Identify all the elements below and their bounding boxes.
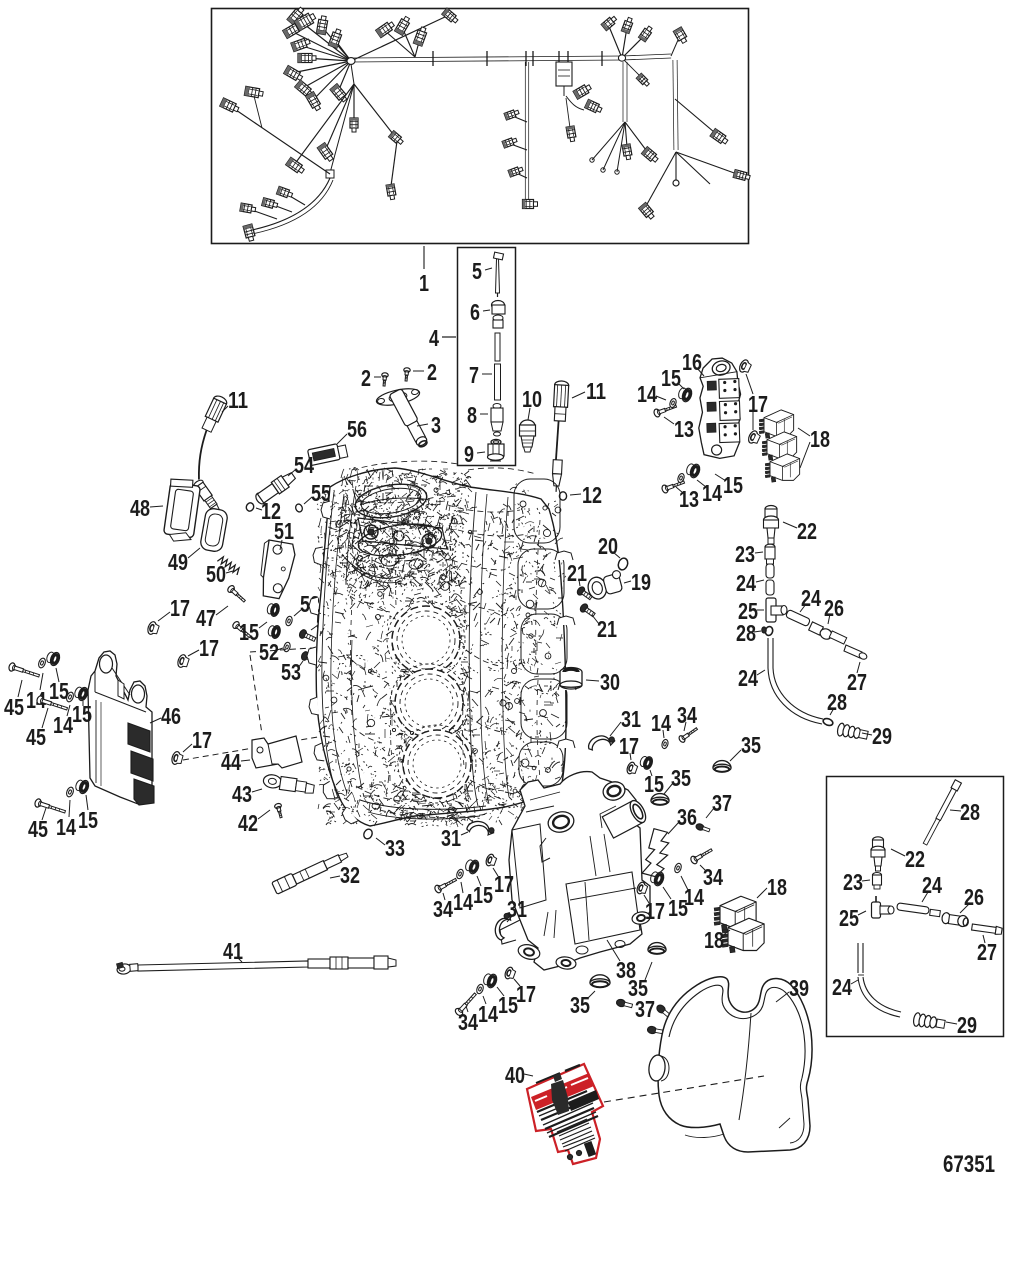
svg-text:67351: 67351: [943, 1151, 995, 1178]
svg-text:18: 18: [767, 874, 787, 900]
svg-text:32: 32: [340, 862, 360, 888]
svg-text:36: 36: [677, 804, 697, 830]
svg-text:28: 28: [960, 799, 980, 825]
svg-text:20: 20: [598, 533, 618, 559]
svg-text:33: 33: [385, 835, 405, 861]
svg-text:46: 46: [161, 703, 181, 729]
svg-text:49: 49: [168, 549, 188, 575]
svg-text:39: 39: [789, 975, 809, 1001]
svg-text:7: 7: [469, 362, 479, 388]
svg-text:22: 22: [797, 518, 817, 544]
svg-text:34: 34: [433, 896, 453, 922]
svg-text:11: 11: [586, 378, 606, 404]
svg-text:15: 15: [498, 992, 518, 1018]
svg-text:14: 14: [478, 1001, 498, 1027]
svg-text:1: 1: [419, 270, 429, 296]
svg-text:13: 13: [679, 486, 699, 512]
svg-text:24: 24: [832, 974, 852, 1000]
svg-text:37: 37: [712, 790, 732, 816]
svg-text:45: 45: [28, 816, 48, 842]
svg-text:5: 5: [472, 258, 482, 284]
svg-text:16: 16: [682, 349, 702, 375]
svg-text:11: 11: [228, 387, 248, 413]
svg-text:17: 17: [199, 635, 219, 661]
svg-text:48: 48: [130, 495, 150, 521]
svg-text:50: 50: [206, 561, 226, 587]
svg-text:52: 52: [259, 639, 279, 665]
svg-text:4: 4: [429, 325, 439, 351]
svg-text:54: 54: [294, 452, 314, 478]
svg-text:35: 35: [671, 765, 691, 791]
svg-text:21: 21: [597, 616, 617, 642]
svg-text:35: 35: [570, 992, 590, 1018]
svg-text:14: 14: [702, 480, 722, 506]
svg-text:3: 3: [431, 412, 441, 438]
svg-text:22: 22: [905, 846, 925, 872]
svg-text:14: 14: [53, 712, 73, 738]
svg-text:44: 44: [221, 749, 241, 775]
svg-text:2: 2: [361, 365, 371, 391]
svg-text:28: 28: [827, 689, 847, 715]
svg-text:17: 17: [619, 733, 639, 759]
svg-text:14: 14: [651, 710, 671, 736]
svg-text:13: 13: [674, 416, 694, 442]
svg-text:34: 34: [703, 864, 723, 890]
svg-text:42: 42: [238, 810, 258, 836]
svg-text:31: 31: [441, 825, 461, 851]
svg-text:51: 51: [274, 518, 294, 544]
svg-text:56: 56: [347, 416, 367, 442]
svg-text:24: 24: [922, 872, 942, 898]
svg-text:15: 15: [78, 807, 98, 833]
svg-text:24: 24: [736, 570, 756, 596]
svg-text:15: 15: [723, 472, 743, 498]
svg-text:27: 27: [977, 939, 997, 965]
svg-text:17: 17: [748, 391, 768, 417]
svg-text:17: 17: [170, 595, 190, 621]
svg-text:47: 47: [196, 605, 216, 631]
svg-text:45: 45: [26, 724, 46, 750]
svg-text:29: 29: [957, 1012, 977, 1038]
svg-text:8: 8: [467, 402, 477, 428]
svg-text:14: 14: [637, 381, 657, 407]
svg-text:23: 23: [735, 541, 755, 567]
svg-text:34: 34: [677, 702, 697, 728]
svg-text:15: 15: [239, 619, 259, 645]
svg-text:25: 25: [839, 905, 859, 931]
svg-text:6: 6: [470, 299, 480, 325]
svg-text:40: 40: [505, 1062, 525, 1088]
svg-text:30: 30: [600, 669, 620, 695]
svg-text:31: 31: [621, 706, 641, 732]
svg-text:15: 15: [473, 882, 493, 908]
svg-text:35: 35: [741, 732, 761, 758]
svg-text:17: 17: [192, 727, 212, 753]
svg-text:18: 18: [704, 927, 724, 953]
svg-text:53: 53: [281, 659, 301, 685]
svg-text:26: 26: [824, 595, 844, 621]
svg-text:45: 45: [4, 694, 24, 720]
svg-text:12: 12: [582, 482, 602, 508]
svg-text:21: 21: [567, 560, 587, 586]
svg-text:29: 29: [872, 723, 892, 749]
svg-text:28: 28: [736, 620, 756, 646]
svg-text:15: 15: [72, 701, 92, 727]
svg-text:9: 9: [464, 441, 474, 467]
svg-text:43: 43: [232, 781, 252, 807]
svg-text:24: 24: [738, 665, 758, 691]
svg-text:2: 2: [427, 359, 437, 385]
svg-text:34: 34: [458, 1009, 478, 1035]
svg-text:14: 14: [56, 814, 76, 840]
svg-text:18: 18: [810, 426, 830, 452]
svg-text:19: 19: [631, 569, 651, 595]
svg-text:37: 37: [635, 996, 655, 1022]
svg-text:23: 23: [843, 869, 863, 895]
svg-text:10: 10: [522, 386, 542, 412]
svg-text:15: 15: [661, 365, 681, 391]
